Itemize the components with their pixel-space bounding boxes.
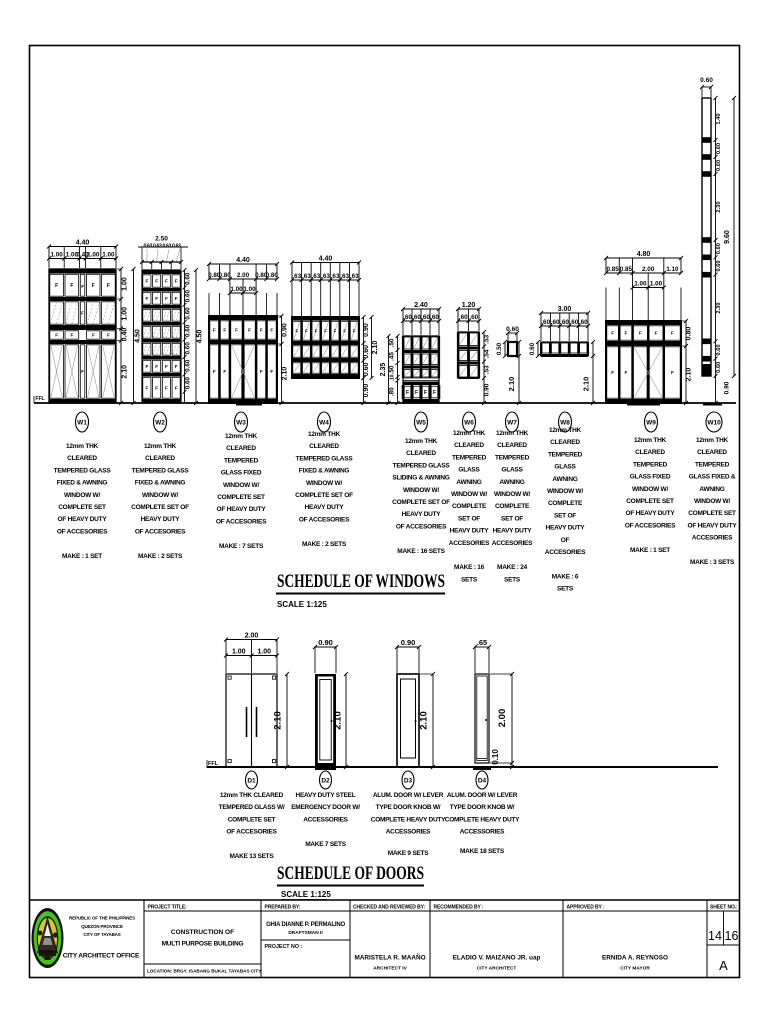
svg-text:12mm THK: 12mm THK: [308, 431, 341, 438]
svg-text:1.00: 1.00: [232, 649, 246, 656]
svg-text:SCHEDULE OF WINDOWS: SCHEDULE OF WINDOWS: [277, 572, 445, 592]
svg-text:F: F: [424, 390, 427, 396]
svg-text:CONSTRUCTION OF: CONSTRUCTION OF: [171, 929, 234, 936]
svg-text:.60: .60: [459, 314, 468, 321]
svg-text:OF HEAVY DUTY: OF HEAVY DUTY: [217, 506, 267, 513]
svg-text:F: F: [155, 296, 158, 301]
svg-text:SETS: SETS: [461, 576, 478, 583]
svg-text:F: F: [671, 370, 674, 375]
svg-text:F: F: [260, 369, 263, 374]
svg-text:4.40: 4.40: [319, 256, 333, 263]
svg-text:F: F: [270, 369, 273, 374]
svg-text:0.85: 0.85: [607, 266, 620, 273]
svg-text:W8: W8: [560, 419, 570, 426]
svg-text:OF ACCESORIES: OF ACCESORIES: [135, 528, 186, 535]
svg-text:F: F: [433, 390, 436, 396]
svg-text:2.00: 2.00: [245, 633, 259, 640]
svg-text:TEMPERED: TEMPERED: [633, 461, 668, 468]
svg-text:ERNIDA A. REYNOSO: ERNIDA A. REYNOSO: [602, 955, 668, 962]
svg-text:PREPARED BY:: PREPARED BY:: [265, 904, 301, 910]
svg-text:FIXED & AWNING: FIXED & AWNING: [299, 468, 350, 475]
svg-text:F: F: [107, 283, 110, 289]
svg-text:CLEARED: CLEARED: [454, 442, 484, 449]
svg-text:2.10: 2.10: [372, 341, 379, 355]
svg-text:WINDOW W/: WINDOW W/: [64, 492, 100, 499]
svg-text:CLEARED: CLEARED: [309, 443, 339, 450]
svg-text:ACCESORIES: ACCESORIES: [492, 540, 533, 547]
svg-text:12mm THK CLEARED: 12mm THK CLEARED: [220, 792, 284, 799]
svg-text:OF ACCESORIES: OF ACCESORIES: [226, 829, 277, 836]
svg-text:0.60: 0.60: [185, 324, 192, 337]
svg-text:.60: .60: [570, 319, 579, 326]
svg-text:1.00: 1.00: [257, 649, 271, 656]
svg-text:APPROVED BY :: APPROVED BY :: [567, 904, 605, 910]
svg-text:TEMPERED: TEMPERED: [224, 457, 259, 464]
svg-text:F: F: [213, 369, 216, 374]
svg-text:ACCESORIES: ACCESORIES: [545, 549, 586, 556]
svg-text:FIXED & AWNING: FIXED & AWNING: [135, 480, 186, 487]
svg-text:4.40: 4.40: [236, 257, 250, 264]
svg-text:DRAFTSMAN II: DRAFTSMAN II: [288, 930, 323, 936]
svg-text:CLEARED: CLEARED: [406, 450, 436, 457]
svg-text:2.00: 2.00: [237, 272, 250, 279]
svg-text:F: F: [415, 390, 418, 396]
svg-text:0.60: 0.60: [506, 326, 519, 333]
svg-text:TEMPERED: TEMPERED: [452, 454, 487, 461]
svg-text:CITY ARCHITECT OFFICE: CITY ARCHITECT OFFICE: [63, 953, 140, 960]
svg-text:MAKE : 1 SET: MAKE : 1 SET: [62, 553, 102, 560]
svg-text:1.10: 1.10: [666, 266, 679, 273]
svg-text:COMPLETE SET: COMPLETE SET: [688, 510, 736, 517]
svg-text:.63: .63: [331, 273, 340, 280]
svg-text:GLASS FIXED: GLASS FIXED: [630, 474, 671, 481]
svg-text:ACCESSORIES: ACCESSORIES: [303, 816, 348, 823]
svg-text:F: F: [146, 279, 149, 284]
svg-text:1.00: 1.00: [87, 252, 100, 259]
svg-text:AWNING: AWNING: [456, 479, 481, 486]
svg-text:WINDOW W/: WINDOW W/: [306, 480, 342, 487]
svg-text:OF ACCESORIES: OF ACCESORIES: [57, 528, 108, 535]
svg-text:F: F: [260, 328, 263, 333]
svg-text:RECOMMENDED BY :: RECOMMENDED BY :: [434, 904, 484, 910]
svg-text:HEAVY DUTY: HEAVY DUTY: [546, 525, 586, 532]
svg-text:F: F: [223, 369, 226, 374]
svg-text:ACCESORIES: ACCESORIES: [692, 535, 733, 542]
svg-text:F: F: [334, 328, 337, 333]
svg-text:W6: W6: [464, 419, 474, 426]
svg-text:COMPLETE: COMPLETE: [548, 500, 583, 507]
svg-text:FFL: FFL: [208, 761, 219, 767]
svg-text:14: 14: [708, 929, 722, 943]
svg-text:CLEARED: CLEARED: [145, 455, 175, 462]
svg-text:AWNING: AWNING: [552, 476, 577, 483]
svg-text:TEMPERED GLASS: TEMPERED GLASS: [132, 467, 190, 474]
svg-text:QUEZON PROVINCE: QUEZON PROVINCE: [81, 924, 123, 929]
svg-text:COMPLETE SET OF: COMPLETE SET OF: [392, 499, 450, 506]
svg-text:W7: W7: [507, 419, 517, 426]
svg-text:OF ACCESORIES: OF ACCESORIES: [396, 523, 447, 530]
svg-text:MAKE : 16 SETS: MAKE : 16 SETS: [397, 548, 445, 555]
svg-text:2.10: 2.10: [282, 367, 289, 381]
svg-text:W10: W10: [707, 419, 721, 426]
svg-text:FFL: FFL: [35, 396, 44, 402]
svg-text:1.00: 1.00: [102, 252, 115, 259]
svg-text:CITY ARCHITECT: CITY ARCHITECT: [477, 966, 517, 972]
svg-text:FIXED & AWNING: FIXED & AWNING: [57, 480, 108, 487]
svg-text:SHEET NO.:: SHEET NO.:: [710, 904, 738, 910]
svg-text:0.60: 0.60: [185, 359, 192, 372]
svg-text:OF ACCESORIES: OF ACCESORIES: [299, 516, 350, 523]
svg-text:SCALE 1:125: SCALE 1:125: [277, 600, 327, 609]
svg-text:.60: .60: [560, 319, 569, 326]
svg-text:ARCHITECT IV: ARCHITECT IV: [373, 966, 407, 972]
svg-text:0.60: 0.60: [716, 243, 722, 254]
svg-text:.63: .63: [292, 273, 301, 280]
svg-text:F: F: [296, 328, 299, 333]
svg-text:W9: W9: [646, 419, 656, 426]
svg-text:F: F: [155, 279, 158, 284]
svg-text:ALUM. DOOR W/ LEVER: ALUM. DOOR W/ LEVER: [373, 792, 444, 799]
svg-text:0.90: 0.90: [363, 323, 370, 337]
svg-text:CLEARED: CLEARED: [635, 449, 665, 456]
svg-text:MAKE 7 SETS: MAKE 7 SETS: [305, 841, 347, 848]
svg-text:COMPLETE: COMPLETE: [495, 503, 530, 510]
svg-text:F: F: [175, 279, 178, 284]
svg-text:PROJECT TITLE:: PROJECT TITLE:: [148, 904, 188, 910]
svg-text:OF HEAVY DUTY: OF HEAVY DUTY: [688, 522, 738, 529]
svg-text:.63: .63: [350, 273, 359, 280]
svg-text:F: F: [55, 333, 58, 338]
svg-text:2.30: 2.30: [716, 302, 722, 313]
svg-text:F: F: [155, 385, 158, 390]
svg-text:GLASS FIXED &: GLASS FIXED &: [689, 474, 736, 481]
svg-text:MAKE : 2 SETS: MAKE : 2 SETS: [138, 553, 183, 560]
svg-text:12mm THK: 12mm THK: [66, 443, 99, 450]
svg-text:F: F: [146, 385, 149, 390]
svg-text:1.20: 1.20: [462, 302, 476, 309]
svg-text:0.60: 0.60: [716, 260, 722, 271]
svg-text:0.63 0.63 0.63 0.63: 0.63 0.63 0.63 0.63: [143, 244, 181, 250]
svg-text:WINDOW W/: WINDOW W/: [694, 498, 730, 505]
svg-text:MAKE : 24: MAKE : 24: [497, 564, 528, 571]
svg-text:ACCESSORIES: ACCESSORIES: [386, 829, 431, 836]
svg-text:GLASS: GLASS: [501, 467, 523, 474]
svg-text:COMPLETE HEAVY DUTY: COMPLETE HEAVY DUTY: [445, 816, 520, 823]
svg-text:F: F: [611, 331, 614, 336]
svg-text:HEAVY DUTY: HEAVY DUTY: [450, 528, 490, 535]
svg-text:WINDOW W/: WINDOW W/: [451, 491, 487, 498]
svg-text:SET OF: SET OF: [554, 512, 576, 519]
svg-text:F: F: [305, 328, 308, 333]
svg-text:COMPLETE SET: COMPLETE SET: [626, 498, 674, 505]
svg-text:WINDOW W/: WINDOW W/: [142, 492, 178, 499]
svg-text:.63: .63: [302, 273, 311, 280]
svg-text:.53: .53: [484, 334, 491, 343]
svg-text:CITY MAYOR: CITY MAYOR: [620, 966, 650, 972]
svg-text:F: F: [611, 370, 614, 375]
svg-text:SET OF: SET OF: [501, 515, 523, 522]
svg-text:1.00: 1.00: [122, 307, 129, 321]
svg-text:A: A: [719, 958, 728, 973]
svg-text:2.35: 2.35: [380, 363, 387, 377]
svg-text:F: F: [146, 296, 149, 301]
svg-text:MAKE : 7 SETS: MAKE : 7 SETS: [219, 543, 264, 550]
svg-text:TEMPERED: TEMPERED: [548, 451, 583, 458]
svg-text:12mm THK: 12mm THK: [696, 437, 729, 444]
svg-text:CLEARED: CLEARED: [550, 439, 580, 446]
svg-text:D1: D1: [247, 777, 256, 784]
svg-text:CLEARED: CLEARED: [67, 455, 97, 462]
svg-text:D3: D3: [404, 777, 413, 784]
svg-text:12mm THK: 12mm THK: [225, 433, 258, 440]
svg-text:HEAVY DUTY STEEL: HEAVY DUTY STEEL: [296, 792, 356, 799]
svg-text:2.00: 2.00: [642, 266, 655, 273]
svg-text:MAKE 13 SETS: MAKE 13 SETS: [230, 853, 275, 860]
svg-text:0.85: 0.85: [620, 266, 633, 273]
svg-text:.45: .45: [389, 352, 396, 361]
svg-text:WINDOW W/: WINDOW W/: [403, 487, 439, 494]
svg-text:ACCESSORIES: ACCESSORIES: [460, 829, 505, 836]
svg-text:SCHEDULE OF DOORS: SCHEDULE OF DOORS: [277, 864, 424, 884]
svg-text:3.00: 3.00: [558, 306, 572, 313]
svg-text:0.90: 0.90: [318, 638, 333, 647]
svg-text:F: F: [165, 296, 168, 301]
svg-text:HEAVY DUTY: HEAVY DUTY: [141, 516, 181, 523]
svg-text:SETS: SETS: [557, 586, 574, 593]
svg-text:4.50: 4.50: [197, 330, 204, 344]
svg-text:F: F: [165, 364, 168, 369]
svg-text:TYPE DOOR KNOB W/: TYPE DOOR KNOB W/: [376, 804, 441, 811]
svg-text:9.60: 9.60: [724, 230, 731, 244]
svg-text:F: F: [343, 328, 346, 333]
svg-text:12mm THK: 12mm THK: [549, 427, 582, 434]
svg-text:SET OF: SET OF: [458, 515, 480, 522]
svg-text:WINDOW W/: WINDOW W/: [632, 486, 668, 493]
svg-text:MAKE : 2 SETS: MAKE : 2 SETS: [302, 541, 347, 548]
svg-text:W1: W1: [77, 419, 87, 426]
svg-text:F: F: [235, 328, 238, 333]
svg-text:WINDOW W/: WINDOW W/: [494, 491, 530, 498]
svg-text:F: F: [155, 364, 158, 369]
svg-text:F: F: [655, 331, 658, 336]
svg-text:2.10: 2.10: [333, 711, 344, 730]
svg-text:F: F: [353, 328, 356, 333]
svg-text:W2: W2: [155, 419, 165, 426]
svg-text:F: F: [639, 331, 642, 336]
svg-text:GLASS: GLASS: [554, 464, 576, 471]
svg-text:CLEARED: CLEARED: [226, 445, 256, 452]
svg-text:F: F: [175, 364, 178, 369]
svg-text:4.80: 4.80: [637, 251, 651, 258]
svg-text:12mm THK: 12mm THK: [496, 430, 529, 437]
svg-text:PROJECT NO :: PROJECT NO :: [265, 944, 303, 950]
svg-text:0.90: 0.90: [363, 384, 370, 398]
svg-text:MAKE : 1 SET: MAKE : 1 SET: [630, 547, 670, 554]
svg-text:12mm THK: 12mm THK: [405, 438, 438, 445]
svg-text:0.60: 0.60: [716, 143, 722, 154]
svg-text:F: F: [270, 328, 273, 333]
svg-text:1.00: 1.00: [50, 252, 63, 259]
svg-text:0.60: 0.60: [363, 345, 370, 359]
svg-text:F: F: [625, 370, 628, 375]
svg-text:WINDOW W/: WINDOW W/: [223, 482, 259, 489]
svg-text:GHIA DIANNE P. PERMALINO: GHIA DIANNE P. PERMALINO: [266, 922, 345, 928]
svg-text:LOCATION: BRGY. ISABANG BUKAL: LOCATION: BRGY. ISABANG BUKAL TAYABAS CI…: [147, 969, 261, 974]
svg-text:0.40: 0.40: [122, 328, 129, 342]
svg-text:TYPE DOOR KNOB W/: TYPE DOOR KNOB W/: [450, 804, 515, 811]
svg-text:MAKE : 3 SETS: MAKE : 3 SETS: [690, 559, 735, 566]
svg-text:F: F: [625, 331, 628, 336]
svg-text:TEMPERED GLASS W/: TEMPERED GLASS W/: [219, 804, 285, 811]
svg-text:COMPLETE SET: COMPLETE SET: [58, 504, 106, 511]
svg-text:COMPLETE SET: COMPLETE SET: [228, 816, 276, 823]
svg-text:ACCESORIES: ACCESORIES: [449, 540, 490, 547]
svg-text:.63: .63: [340, 273, 349, 280]
svg-text:0.60: 0.60: [716, 362, 722, 373]
svg-text:D4: D4: [478, 777, 487, 784]
svg-text:ELADIO V. MAIZANO JR. uap: ELADIO V. MAIZANO JR. uap: [453, 955, 541, 962]
svg-text:F: F: [671, 331, 674, 336]
svg-text:AWNING: AWNING: [699, 486, 724, 493]
svg-text:HEAVY DUTY: HEAVY DUTY: [305, 504, 345, 511]
svg-text:F: F: [81, 369, 84, 374]
svg-text:0.10: 0.10: [491, 749, 500, 765]
svg-text:COMPLETE SET OF: COMPLETE SET OF: [295, 492, 353, 499]
svg-text:.53: .53: [484, 365, 491, 374]
svg-text:OF ACCESORIES: OF ACCESORIES: [625, 522, 676, 529]
svg-text:1.00: 1.00: [230, 286, 243, 293]
svg-text:2.40: 2.40: [414, 302, 428, 309]
svg-text:CHECKED AND REVIEWED BY:: CHECKED AND REVIEWED BY:: [353, 904, 425, 910]
svg-text:0.90: 0.90: [484, 383, 491, 396]
svg-text:F: F: [324, 328, 327, 333]
svg-text:CLEARED: CLEARED: [497, 442, 527, 449]
svg-text:CLEARED: CLEARED: [697, 449, 727, 456]
svg-text:F: F: [165, 279, 168, 284]
svg-text:F: F: [55, 283, 58, 289]
svg-text:F: F: [213, 328, 216, 333]
svg-text:OF: OF: [561, 537, 570, 544]
svg-text:.60: .60: [551, 319, 560, 326]
svg-text:0.80: 0.80: [686, 327, 693, 341]
svg-text:HEAVY DUTY: HEAVY DUTY: [402, 511, 442, 518]
svg-text:W5: W5: [416, 419, 426, 426]
svg-text:COMPLETE SET OF: COMPLETE SET OF: [131, 504, 189, 511]
svg-text:F: F: [175, 296, 178, 301]
svg-text:0.60: 0.60: [716, 344, 722, 355]
svg-text:AWNING: AWNING: [499, 479, 524, 486]
svg-text:0.60: 0.60: [185, 342, 192, 355]
svg-text:CITY OF TAYABAS: CITY OF TAYABAS: [83, 932, 120, 937]
svg-text:MAKE : 6: MAKE : 6: [552, 573, 579, 580]
svg-text:F: F: [70, 283, 73, 289]
svg-text:GLASS: GLASS: [458, 467, 480, 474]
svg-text:0.90: 0.90: [401, 638, 416, 647]
svg-text:0.60: 0.60: [185, 376, 192, 389]
svg-text:F: F: [223, 328, 226, 333]
svg-text:12mm THK: 12mm THK: [144, 443, 177, 450]
svg-text:1.00: 1.00: [650, 281, 663, 288]
svg-text:F: F: [92, 283, 95, 289]
svg-text:COMPLETE SET: COMPLETE SET: [217, 494, 265, 501]
svg-text:0.60: 0.60: [363, 362, 370, 376]
svg-text:COMPLETE: COMPLETE: [452, 503, 487, 510]
svg-text:2.10: 2.10: [122, 365, 129, 379]
svg-text:0.90: 0.90: [724, 381, 731, 394]
svg-text:2.10: 2.10: [686, 368, 693, 382]
svg-text:2.10: 2.10: [582, 377, 591, 392]
svg-text:0.60: 0.60: [716, 160, 722, 171]
svg-text:OF HEAVY DUTY: OF HEAVY DUTY: [58, 516, 108, 523]
svg-text:.63: .63: [312, 273, 321, 280]
svg-text:2.10: 2.10: [507, 377, 516, 392]
svg-text:TEMPERED GLASS: TEMPERED GLASS: [54, 467, 112, 474]
svg-text:2.50: 2.50: [155, 236, 168, 243]
svg-text:2.10: 2.10: [273, 711, 284, 730]
svg-text:EMERGENCY DOOR W/: EMERGENCY DOOR W/: [291, 804, 360, 811]
svg-text:GLASS FIXED: GLASS FIXED: [221, 470, 262, 477]
svg-text:HEAVY DUTY: HEAVY DUTY: [493, 528, 533, 535]
svg-text:12mm THK: 12mm THK: [453, 430, 486, 437]
svg-text:W3: W3: [236, 419, 246, 426]
svg-text:F: F: [107, 333, 110, 338]
svg-text:OF ACCESORIES: OF ACCESORIES: [216, 518, 267, 525]
svg-text:.50: .50: [389, 365, 396, 374]
svg-text:.50: .50: [389, 338, 396, 347]
svg-text:0.60: 0.60: [700, 77, 713, 84]
svg-text:W4: W4: [319, 419, 329, 426]
svg-text:.80: .80: [389, 387, 396, 396]
svg-text:SLIDING & AWNING: SLIDING & AWNING: [392, 475, 449, 482]
svg-text:F: F: [315, 328, 318, 333]
svg-text:COMPLETE HEAVY DUTY: COMPLETE HEAVY DUTY: [371, 816, 446, 823]
svg-text:.60: .60: [579, 319, 588, 326]
svg-text:F: F: [175, 385, 178, 390]
svg-text:0.90: 0.90: [282, 323, 289, 337]
svg-text:F: F: [70, 333, 73, 338]
svg-text:2.00: 2.00: [497, 709, 508, 728]
svg-text:2.30: 2.30: [716, 201, 722, 212]
svg-text:TEMPERED GLASS: TEMPERED GLASS: [296, 455, 354, 462]
svg-text:MARISTELA R. MAAÑO: MARISTELA R. MAAÑO: [354, 953, 425, 962]
svg-text:1.00: 1.00: [243, 286, 256, 293]
svg-text:WINDOW W/: WINDOW W/: [547, 488, 583, 495]
svg-text:F: F: [92, 333, 95, 338]
svg-text:F: F: [406, 390, 409, 396]
svg-text:TEMPERED: TEMPERED: [695, 461, 730, 468]
svg-text:0.50: 0.50: [496, 342, 503, 355]
svg-text:ALUM. DOOR W/ LEVER: ALUM. DOOR W/ LEVER: [447, 792, 518, 799]
svg-text:.10: .10: [390, 374, 396, 381]
svg-text:2.10: 2.10: [419, 711, 430, 730]
svg-text:0.60: 0.60: [185, 307, 192, 320]
svg-text:F: F: [81, 284, 84, 289]
svg-text:SETS: SETS: [504, 576, 521, 583]
svg-text:.65: .65: [477, 638, 487, 647]
svg-text:OF HEAVY DUTY: OF HEAVY DUTY: [626, 510, 676, 517]
svg-text:F: F: [165, 385, 168, 390]
svg-text:.63: .63: [321, 273, 330, 280]
svg-text:.54: .54: [484, 349, 491, 358]
svg-text:REPUBLIC OF THE PHILIPPINES: REPUBLIC OF THE PHILIPPINES: [69, 916, 135, 921]
svg-text:1.00: 1.00: [122, 277, 129, 291]
svg-text:F: F: [81, 311, 84, 316]
svg-text:.60: .60: [541, 319, 550, 326]
svg-text:0.60: 0.60: [529, 342, 536, 355]
svg-text:SCALE 1:125: SCALE 1:125: [281, 890, 331, 899]
svg-text:0.60: 0.60: [185, 272, 192, 285]
svg-text:1.40: 1.40: [716, 113, 722, 124]
